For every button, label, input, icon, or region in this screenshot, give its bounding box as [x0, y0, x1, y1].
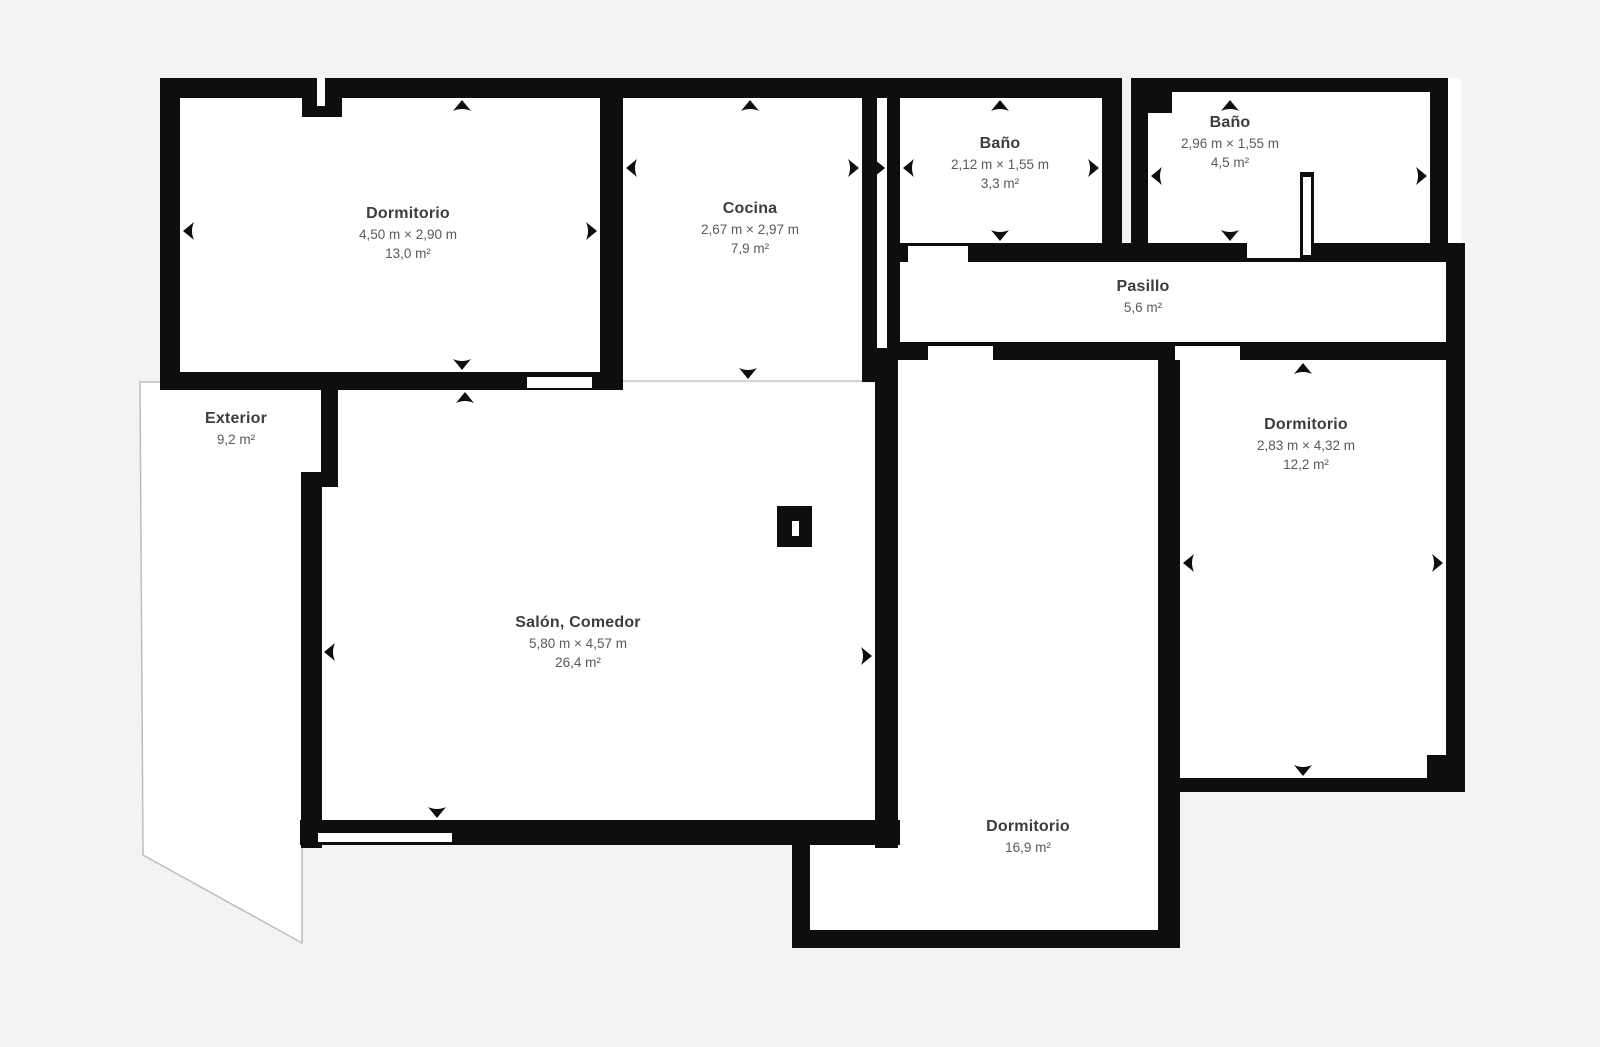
- wall: [1158, 342, 1180, 948]
- room-label-dormitorio-3: Dormitorio 16,9 m²: [986, 816, 1070, 857]
- wall-slot-opening: [877, 98, 887, 348]
- wall: [1446, 243, 1465, 780]
- wall: [301, 472, 322, 848]
- wall: [875, 342, 898, 848]
- wall: [792, 930, 1180, 948]
- door-opening: [928, 346, 993, 360]
- room-dims: 4,50 m × 2,90 m: [359, 225, 457, 244]
- wall: [1131, 78, 1448, 92]
- room-name: Dormitorio: [1257, 414, 1355, 436]
- room-dims: 2,96 m × 1,55 m: [1181, 134, 1279, 153]
- room-area: 9,2 m²: [205, 430, 267, 449]
- wall: [1102, 78, 1122, 262]
- wall: [862, 98, 877, 382]
- wall: [160, 78, 180, 390]
- window-opening: [527, 377, 592, 388]
- room-label-dormitorio-2: Dormitorio 2,83 m × 4,32 m 12,2 m²: [1257, 414, 1355, 474]
- door-leaf-fill: [1303, 177, 1311, 255]
- column: [777, 506, 812, 547]
- room-area: 7,9 m²: [701, 239, 799, 258]
- room-label-salon-comedor: Salón, Comedor 5,80 m × 4,57 m 26,4 m²: [515, 612, 640, 672]
- room-area: 13,0 m²: [359, 244, 457, 263]
- door-opening: [908, 246, 968, 262]
- room-name: Exterior: [205, 408, 267, 430]
- room-name: Baño: [951, 133, 1049, 155]
- wall: [600, 95, 623, 390]
- wall: [887, 78, 900, 352]
- column-slot: [792, 521, 799, 536]
- door-leaf: [1300, 172, 1314, 260]
- wall: [321, 383, 338, 487]
- room-label-dormitorio-1: Dormitorio 4,50 m × 2,90 m 13,0 m²: [359, 203, 457, 263]
- window-opening: [318, 833, 452, 842]
- door-opening: [1175, 346, 1240, 360]
- wall-slot-opening: [317, 78, 325, 106]
- exterior-area: [140, 382, 302, 943]
- room-dims: 2,12 m × 1,55 m: [951, 155, 1049, 174]
- room-label-pasillo: Pasillo 5,6 m²: [1117, 276, 1170, 317]
- room-area: 5,6 m²: [1117, 298, 1170, 317]
- room-areas: [162, 78, 1465, 948]
- room-name: Cocina: [701, 198, 799, 220]
- wall: [1158, 778, 1443, 792]
- room-name: Pasillo: [1117, 276, 1170, 298]
- room-dims: 2,83 m × 4,32 m: [1257, 436, 1355, 455]
- room-area: 4,5 m²: [1181, 153, 1279, 172]
- room-area: 12,2 m²: [1257, 455, 1355, 474]
- room-name: Dormitorio: [986, 816, 1070, 838]
- floor-plan-svg: [0, 0, 1600, 1047]
- room-dims: 5,80 m × 4,57 m: [515, 634, 640, 653]
- room-area: 3,3 m²: [951, 174, 1049, 193]
- room-area: 16,9 m²: [986, 838, 1070, 857]
- wall: [1131, 78, 1172, 113]
- room-label-bano-2: Baño 2,96 m × 1,55 m 4,5 m²: [1181, 112, 1279, 172]
- door-opening: [1247, 243, 1303, 258]
- room-area-dormitorio-2: [1158, 342, 1462, 792]
- room-name: Dormitorio: [359, 203, 457, 225]
- room-name: Salón, Comedor: [515, 612, 640, 634]
- room-dims: 2,67 m × 2,97 m: [701, 220, 799, 239]
- room-name: Baño: [1181, 112, 1279, 134]
- room-label-cocina: Cocina 2,67 m × 2,97 m 7,9 m²: [701, 198, 799, 258]
- room-area: 26,4 m²: [515, 653, 640, 672]
- room-label-bano-1: Baño 2,12 m × 1,55 m 3,3 m²: [951, 133, 1049, 193]
- floor-plan: Dormitorio 4,50 m × 2,90 m 13,0 m² Cocin…: [0, 0, 1600, 1047]
- room-label-exterior: Exterior 9,2 m²: [205, 408, 267, 449]
- wall: [1430, 78, 1448, 248]
